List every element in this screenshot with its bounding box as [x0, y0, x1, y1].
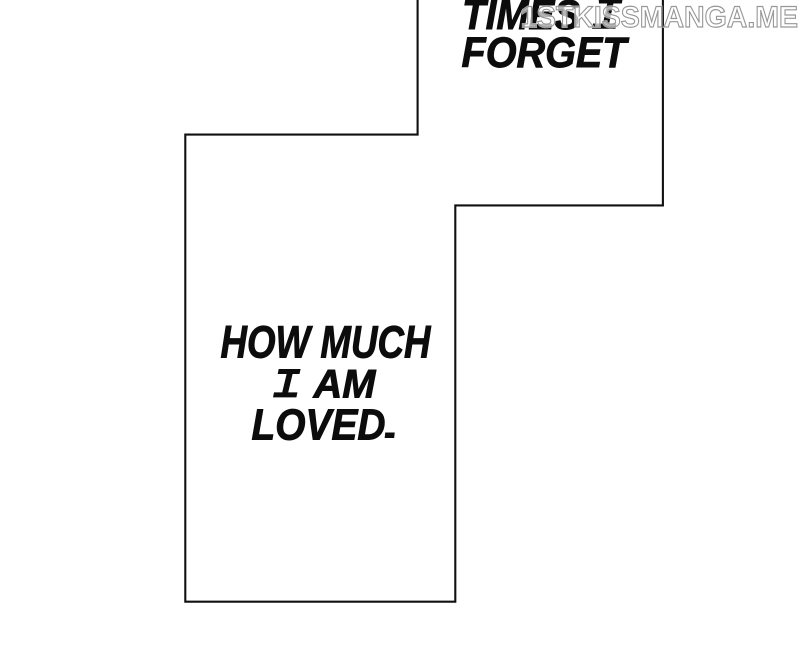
- svg-text:HOW MUCH: HOW MUCH: [221, 317, 432, 368]
- svg-text:FORGET: FORGET: [462, 30, 630, 77]
- svg-text:1STKISSMANGA.ME: 1STKISSMANGA.ME: [521, 1, 798, 34]
- svg-text:LOVED: LOVED: [252, 401, 386, 450]
